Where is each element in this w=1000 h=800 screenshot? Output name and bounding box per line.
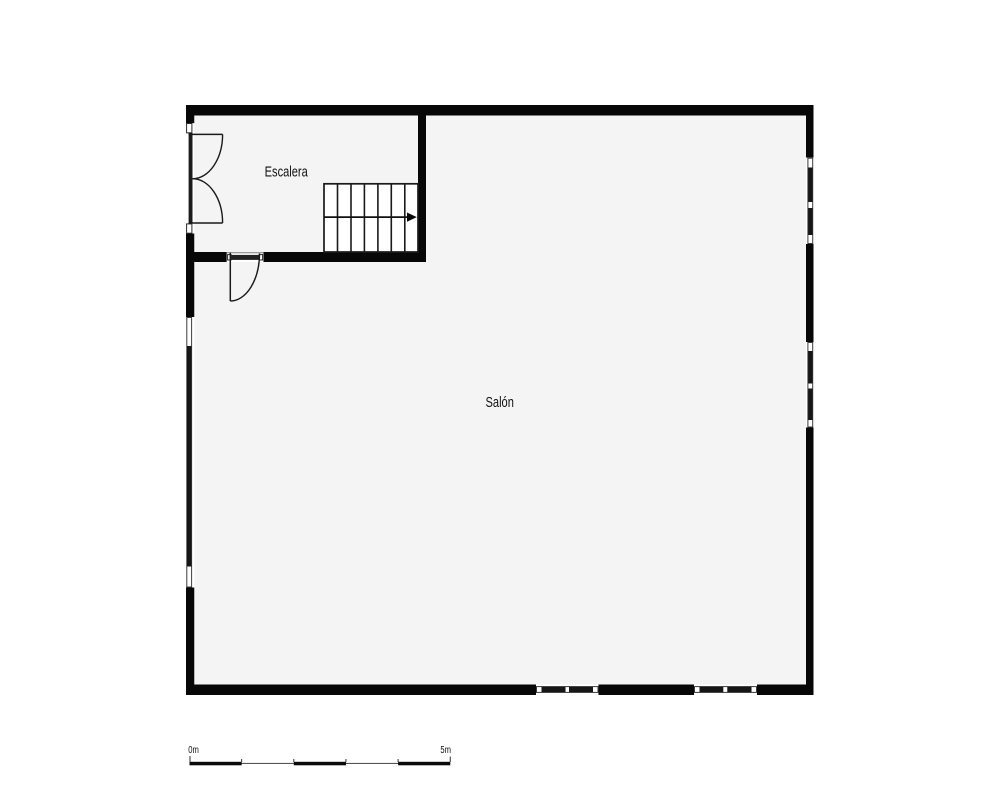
svg-text:5m: 5m [440, 744, 451, 755]
svg-text:Salón: Salón [486, 394, 514, 411]
svg-text:Escalera: Escalera [265, 163, 309, 180]
svg-text:0m: 0m [188, 744, 199, 755]
